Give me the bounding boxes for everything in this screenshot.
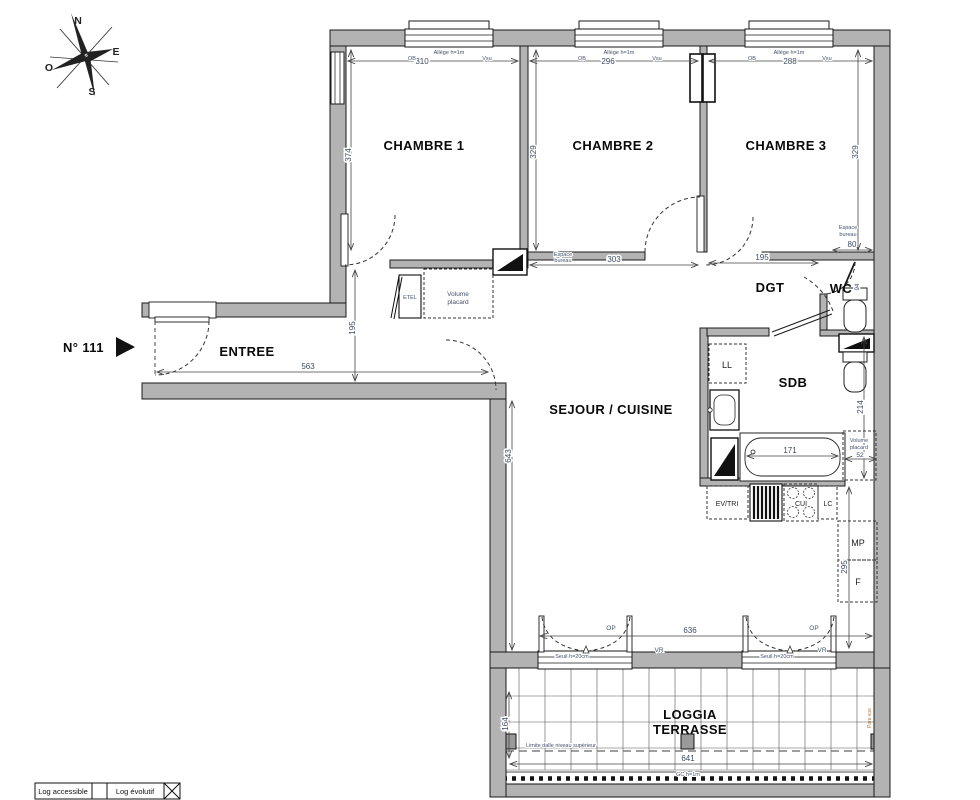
allege-label-3: Allège h=1m [774, 50, 805, 56]
espace-bureau-1-line2: bureau [554, 258, 571, 264]
vsu-label-2: Vsu [652, 56, 661, 62]
dim-wc-door: 94 [855, 283, 861, 290]
compass-o: O [45, 62, 53, 74]
vsu-label-3: Vsu [822, 56, 831, 62]
unit-arrow-icon [116, 337, 135, 357]
dim-dgt-width: 195 [755, 253, 769, 262]
dim-sejour-height: 643 [504, 449, 513, 463]
room-label-dgt: DGT [756, 280, 785, 295]
dim-sdb-height: 214 [856, 400, 865, 414]
volume-placard-sdb-line2: placard [850, 445, 868, 451]
floor-plan-sheet: CHAMBRE 1 CHAMBRE 2 CHAMBRE 3 ENTREE SEJ… [0, 0, 980, 800]
limite-dalle-label: Limite dalle niveau supérieur [526, 743, 596, 749]
room-label-wc: WC [830, 281, 853, 296]
dim-loggia-height: 164 [501, 717, 510, 731]
ob-label-1: OB [408, 56, 416, 62]
washer-label: LL [722, 360, 732, 370]
compass-rose-icon: N E O S [45, 13, 120, 98]
room-label-chambre2: CHAMBRE 2 [573, 138, 654, 153]
vr-label-1: VR [654, 647, 663, 654]
gc-label: GC h=1m [676, 772, 700, 778]
french-door-1 [538, 616, 632, 669]
cooktop-label: CUI [795, 501, 807, 508]
dim-entree-width: 563 [301, 362, 315, 371]
lc-label: LC [824, 501, 833, 508]
ob-label-3: OB [748, 56, 756, 62]
bathtub [740, 433, 845, 481]
dim-corridor: 303 [607, 255, 621, 264]
dim-bureau-width: 80 [848, 240, 857, 249]
dim-chambre1-width: 310 [415, 57, 429, 66]
op-label-2: OP [809, 625, 818, 632]
op-label-1: OP [606, 625, 615, 632]
dim-loggia-width: 641 [681, 754, 695, 763]
mp-label: MP [851, 538, 865, 548]
room-label-entree: ENTREE [219, 344, 274, 359]
dim-chambre2-width: 296 [601, 57, 615, 66]
washbasin [708, 390, 739, 430]
dim-entree-height: 195 [348, 321, 357, 335]
espace-bureau-2-line1: Espace [839, 225, 857, 231]
vr-label-2: VR [817, 647, 826, 654]
room-label-terrasse: TERRASSE [653, 722, 727, 737]
compass-e: E [112, 46, 119, 58]
etel-label: ETEL [403, 295, 417, 301]
seuil-label-2: Seuil h=20cm [760, 654, 794, 660]
legend-log-evolutif: Log évolutif [116, 787, 155, 796]
french-door-2 [742, 616, 836, 669]
entry-door [149, 302, 216, 375]
volume-placard-entree-line2: placard [447, 299, 469, 306]
window-top-2 [575, 21, 663, 47]
legend-log-accessible: Log accessible [38, 787, 88, 796]
vsu-label-1: Vsu [482, 56, 491, 62]
log-accessible-checkbox [92, 783, 107, 799]
allege-label-1: Allège h=1m [434, 50, 465, 56]
compass-s: S [88, 86, 95, 98]
sdb-toilet [843, 352, 867, 392]
floor-plan-drawing: CHAMBRE 1 CHAMBRE 2 CHAMBRE 3 ENTREE SEJ… [0, 0, 980, 800]
sink-label: EV/TRI [716, 501, 739, 508]
window-top-3 [745, 21, 833, 47]
log-evolutif-checkbox [164, 783, 180, 799]
room-label-loggia: LOGGIA [663, 707, 717, 722]
room-label-sdb: SDB [779, 375, 808, 390]
window-top-1 [405, 21, 493, 47]
seuil-label-1: Seuil h=20cm [555, 654, 589, 660]
dim-bath: 171 [783, 446, 797, 455]
unit-number-group: N° 111 [63, 337, 135, 357]
dim-kitchen-height: 295 [840, 560, 849, 574]
espace-bureau-2-line2: bureau [839, 232, 856, 238]
room-label-sejour-cuisine: SEJOUR / CUISINE [549, 402, 672, 417]
dim-chambre3-height: 329 [851, 145, 860, 159]
unit-number: N° 111 [63, 340, 104, 355]
legend: Log accessible Log évolutif [35, 783, 180, 799]
volume-placard-sdb-line1: Volume [850, 438, 868, 444]
dim-chambre2-height: 329 [529, 145, 538, 159]
compass-n: N [74, 15, 82, 27]
volume-placard-entree-line1: Volume [447, 291, 469, 298]
dim-chambre3-width: 288 [783, 57, 797, 66]
room-label-chambre3: CHAMBRE 3 [746, 138, 827, 153]
allege-label-2: Allège h=1m [604, 50, 635, 56]
dim-chambre1-height: 374 [344, 148, 353, 162]
dim-sejour-width: 636 [683, 626, 697, 635]
room-label-chambre1: CHAMBRE 1 [384, 138, 465, 153]
window-west-chambre1 [331, 52, 344, 104]
ob-label-2: OB [578, 56, 586, 62]
dim-placard-width: 52 [856, 452, 864, 459]
fridge-label: F [855, 577, 861, 587]
pare-vue-label: Pare vue [867, 708, 873, 728]
